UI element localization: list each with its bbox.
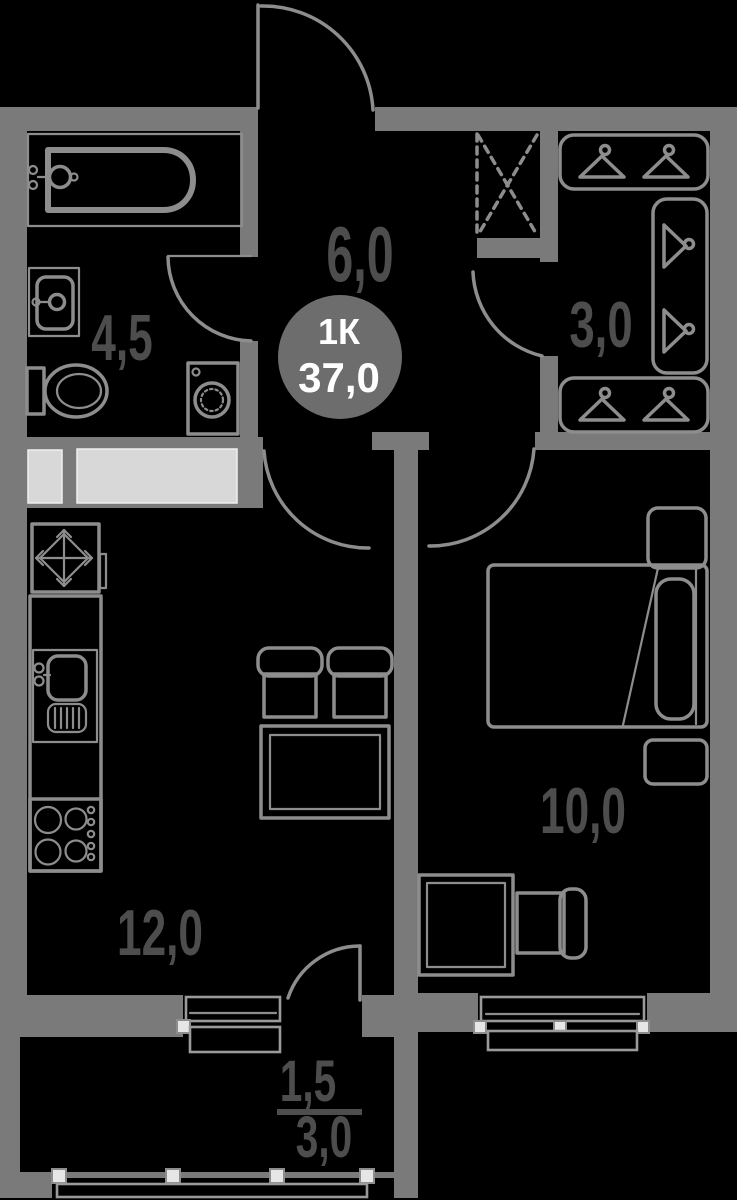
wall-balcony-left	[0, 1037, 20, 1180]
glazing-post	[166, 1169, 180, 1183]
wall-shaft-bottom-stub	[477, 238, 540, 258]
window-post	[637, 1021, 649, 1033]
window-sill	[190, 1027, 280, 1052]
balcony-area-total-label: 3,0	[296, 1105, 352, 1170]
wall-partition-cap	[372, 432, 429, 450]
wall-bathroom-right-lower	[240, 341, 258, 437]
window-post	[474, 1021, 486, 1033]
hall-closet	[28, 449, 237, 503]
wardrobe-area-label: 3,0	[569, 288, 632, 361]
wall-top-left	[0, 107, 258, 131]
floor-plan-page: 4,5 6,0 3,0 12,0 10,0 1,5 3,0 1К 37,0	[0, 0, 737, 1200]
wall-right	[710, 131, 737, 1032]
closet-door-panel	[28, 450, 62, 503]
window-frame	[186, 997, 280, 1021]
hallway-area-label: 6,0	[326, 210, 393, 298]
wall-shaft-right	[540, 131, 558, 262]
wall-living-bottom-right	[362, 995, 418, 1037]
kitchen-living-area-label: 12,0	[117, 897, 203, 970]
closet-door-panel	[77, 449, 237, 503]
window-frame	[481, 997, 644, 1021]
wall-bedroom-bottom-left	[418, 993, 478, 1032]
wall-top-right	[375, 107, 737, 131]
window-ledge	[488, 1031, 637, 1050]
balcony-glazing-rail	[20, 1172, 394, 1178]
wall-bedroom-bottom-right	[647, 993, 737, 1032]
window-post	[177, 1020, 190, 1033]
apartment-total-area-label: 37,0	[298, 354, 380, 401]
wall-living-bottom-left	[20, 995, 183, 1037]
balcony-lower-rail	[57, 1184, 367, 1197]
bedroom-area-label: 10,0	[540, 775, 626, 848]
wall-partition-stem	[394, 450, 418, 1198]
floor-plan-canvas: 4,5 6,0 3,0 12,0 10,0 1,5 3,0 1К 37,0	[0, 0, 737, 1200]
wall-left	[0, 107, 27, 1037]
bathroom-area-label: 4,5	[91, 302, 152, 375]
glazing-post	[360, 1169, 374, 1183]
apartment-type-label: 1К	[318, 311, 361, 352]
apartment-badge: 1К 37,0	[278, 295, 402, 419]
wall-wardrobe-bottom	[535, 432, 710, 450]
glazing-post	[270, 1169, 284, 1183]
glazing-post	[52, 1169, 66, 1183]
